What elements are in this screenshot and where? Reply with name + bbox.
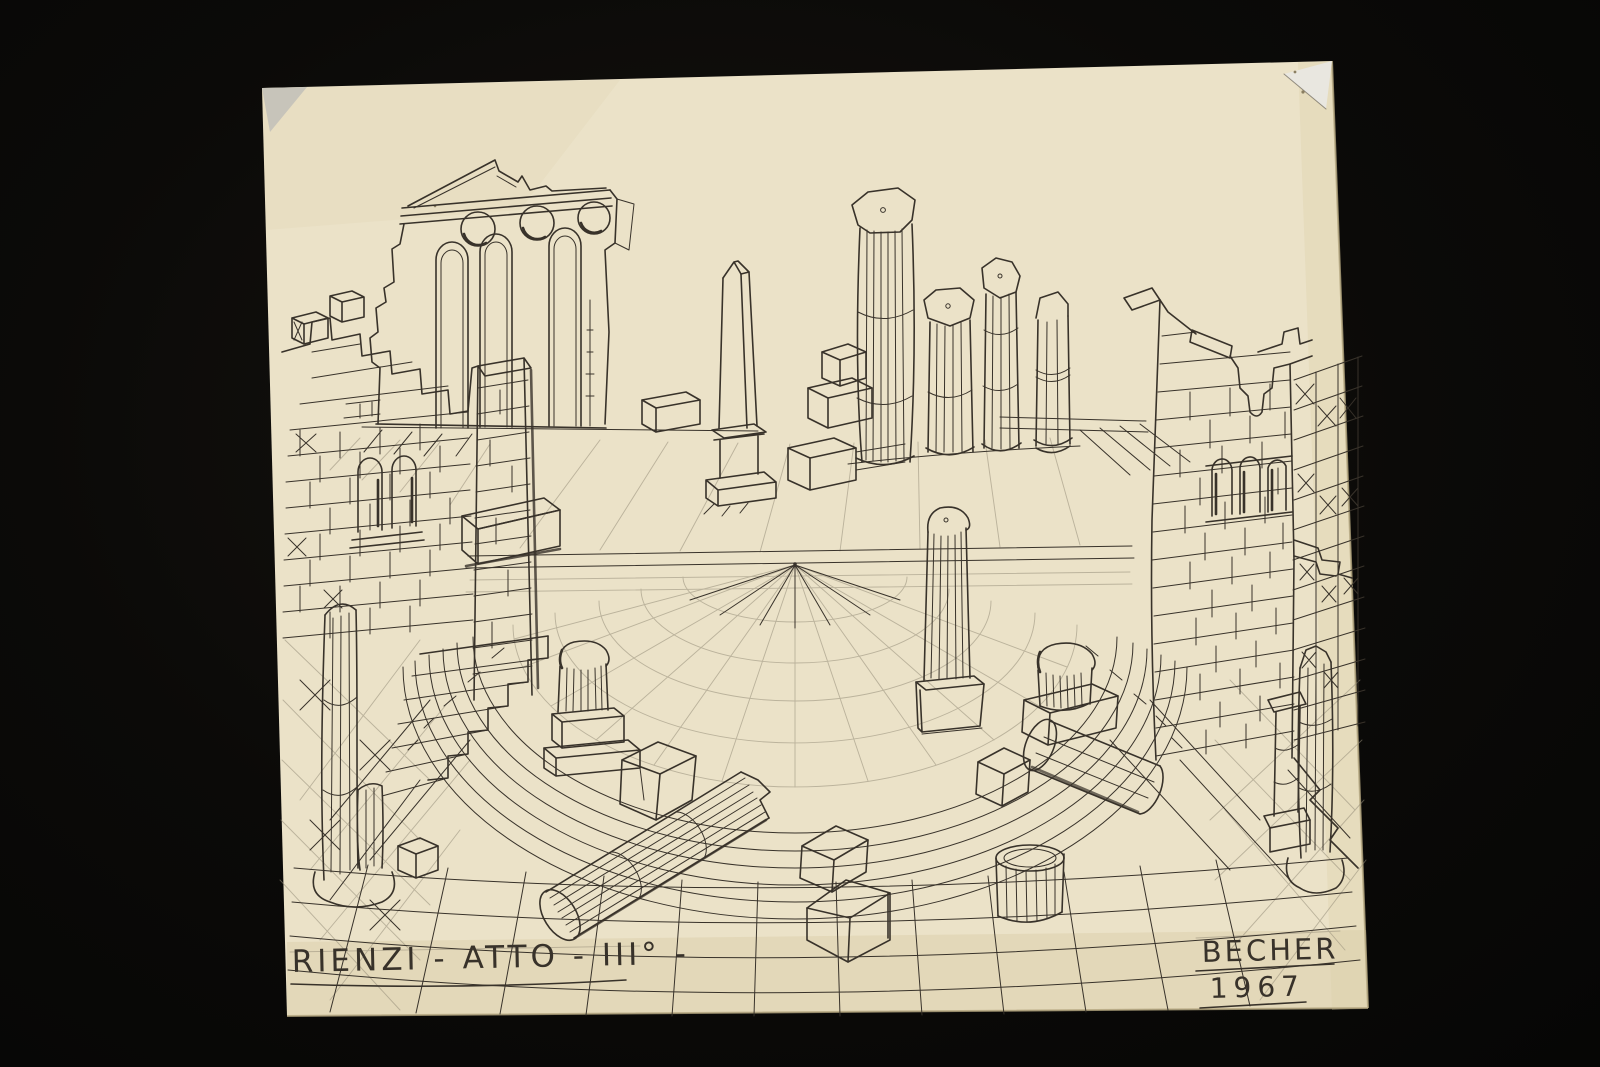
signature: BECHER [1201, 931, 1339, 969]
paper-speck [1294, 71, 1297, 74]
year-inscription: 1967 [1209, 970, 1305, 1005]
paper-speck [1301, 90, 1304, 93]
photo-backdrop: RIENZI - ATTO - III° - BECHER 1967 [0, 0, 1600, 1067]
stage-set-drawing: RIENZI - ATTO - III° - BECHER 1967 [0, 0, 1600, 1067]
